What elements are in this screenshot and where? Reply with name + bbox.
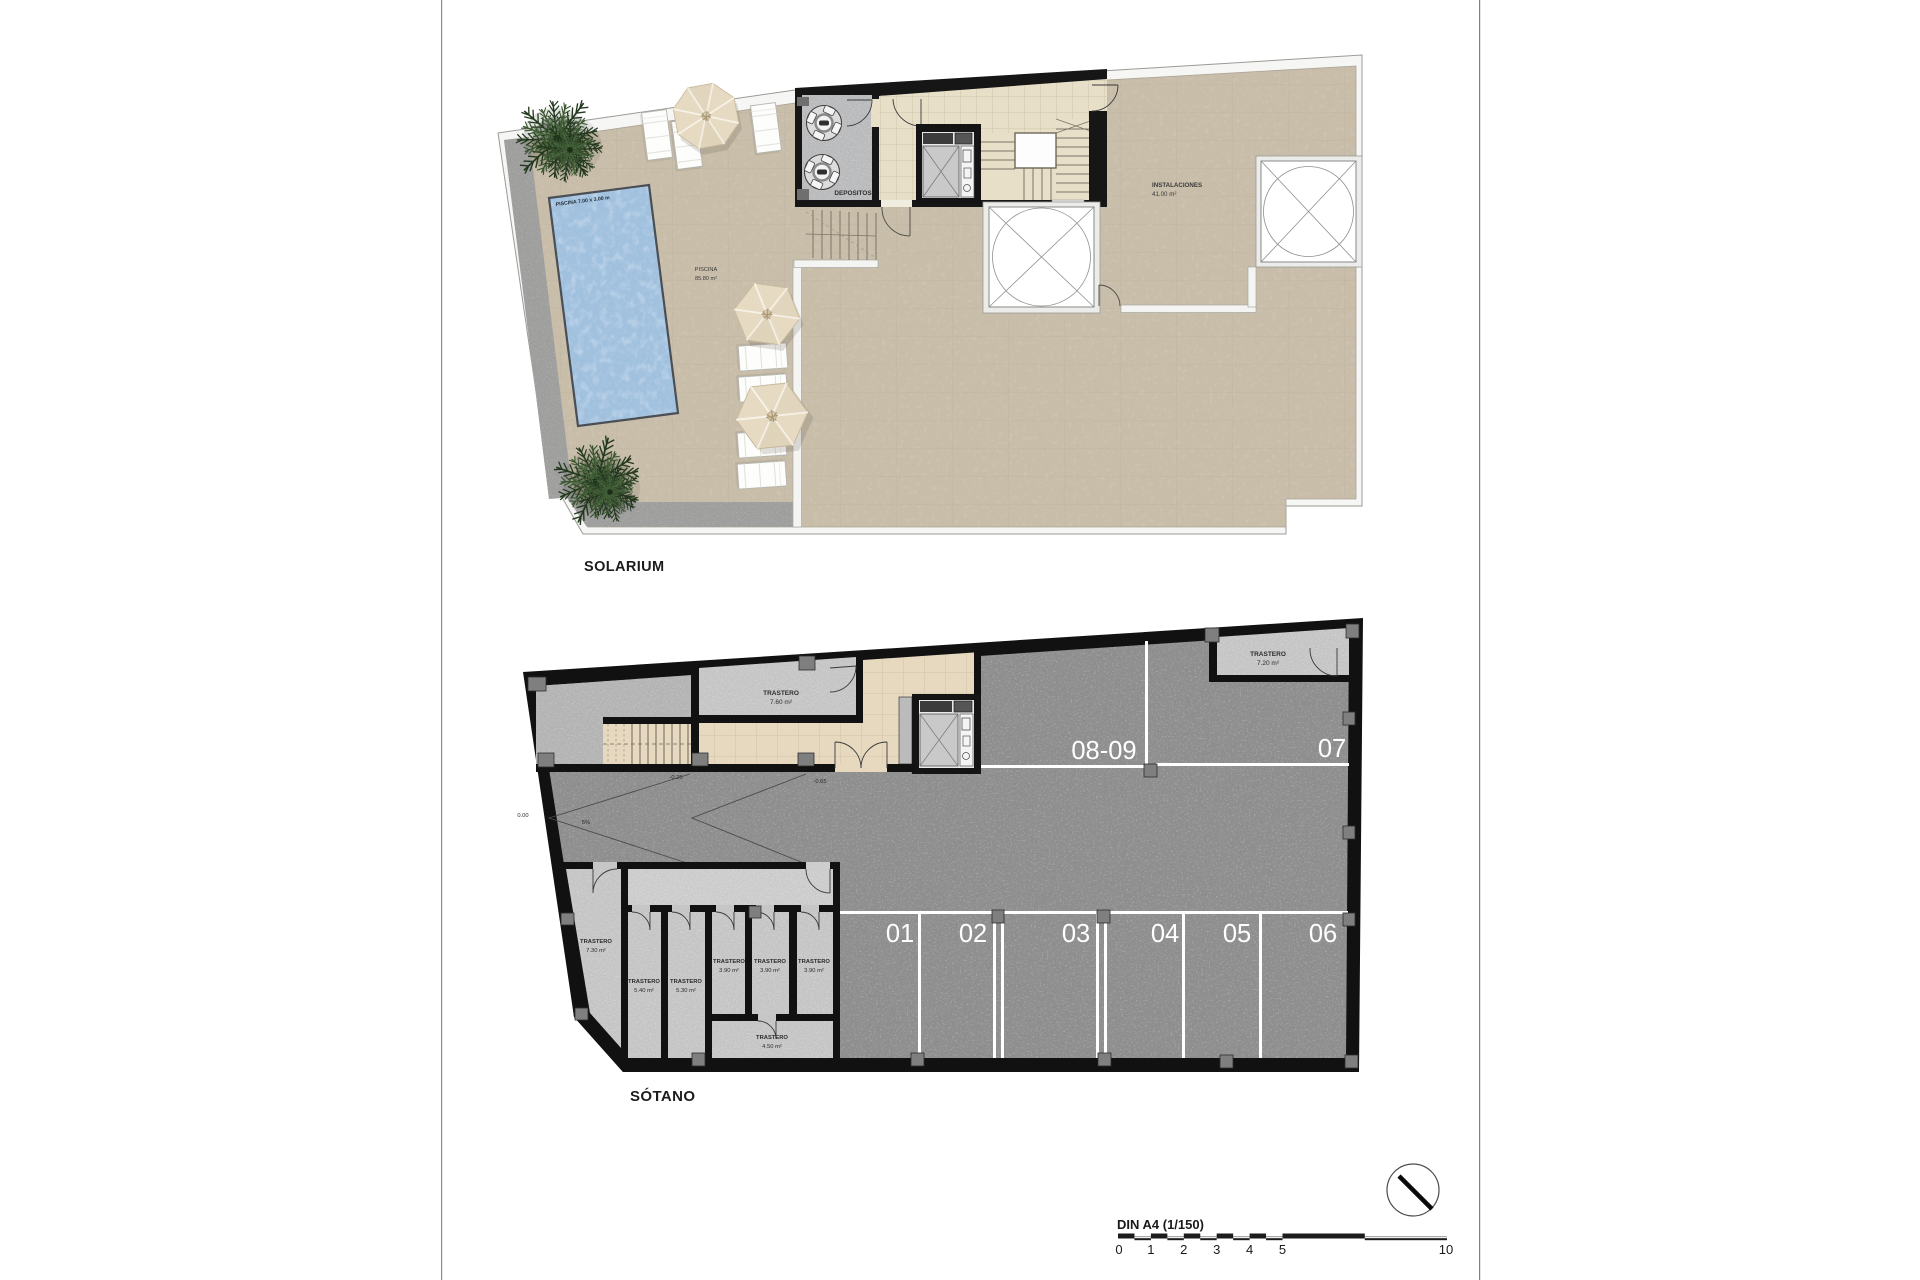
svg-text:06: 06 (1309, 920, 1337, 948)
svg-text:41.00 m²: 41.00 m² (1152, 191, 1176, 198)
svg-text:2: 2 (1180, 1242, 1187, 1257)
svg-text:5.30 m²: 5.30 m² (676, 988, 696, 994)
svg-text:85.80 m²: 85.80 m² (695, 276, 717, 282)
svg-text:SOLARIUM: SOLARIUM (584, 559, 665, 575)
svg-text:7.30 m²: 7.30 m² (586, 948, 606, 954)
svg-text:3.90 m²: 3.90 m² (804, 968, 824, 974)
svg-text:-0.65: -0.65 (813, 779, 826, 785)
svg-text:TRASTERO: TRASTERO (756, 1035, 788, 1041)
svg-text:5%: 5% (582, 820, 590, 826)
svg-text:TRASTERO: TRASTERO (713, 959, 745, 965)
svg-text:TRASTERO: TRASTERO (628, 979, 660, 985)
svg-text:DEPOSITOS: DEPOSITOS (834, 190, 872, 197)
svg-text:PISCINA: PISCINA (695, 267, 718, 273)
svg-text:07: 07 (1318, 735, 1346, 763)
svg-text:10: 10 (1439, 1242, 1453, 1257)
svg-text:TRASTERO: TRASTERO (754, 959, 786, 965)
svg-text:05: 05 (1223, 920, 1251, 948)
svg-text:3.90 m²: 3.90 m² (719, 968, 739, 974)
svg-text:TRASTERO: TRASTERO (798, 959, 830, 965)
svg-text:3.90 m²: 3.90 m² (760, 968, 780, 974)
svg-text:03: 03 (1062, 920, 1090, 948)
svg-text:5.40 m²: 5.40 m² (634, 988, 654, 994)
svg-text:DIN A4 (1/150): DIN A4 (1/150) (1117, 1217, 1204, 1232)
svg-text:4: 4 (1246, 1242, 1253, 1257)
svg-text:4.50 m²: 4.50 m² (762, 1044, 782, 1050)
svg-text:-0.25: -0.25 (669, 775, 682, 781)
svg-text:TRASTERO: TRASTERO (1250, 651, 1286, 658)
svg-text:3: 3 (1213, 1242, 1220, 1257)
svg-text:5: 5 (1279, 1242, 1286, 1257)
svg-text:08-09: 08-09 (1071, 737, 1136, 765)
svg-text:TRASTERO: TRASTERO (763, 690, 799, 697)
svg-text:7.60 m²: 7.60 m² (770, 699, 793, 706)
svg-text:0: 0 (1115, 1242, 1122, 1257)
svg-text:04: 04 (1151, 920, 1179, 948)
svg-text:INSTALACIONES: INSTALACIONES (1152, 182, 1202, 189)
svg-text:7.20 m²: 7.20 m² (1257, 660, 1280, 667)
svg-text:0.00: 0.00 (517, 813, 528, 819)
svg-text:1: 1 (1147, 1242, 1154, 1257)
svg-text:TRASTERO: TRASTERO (670, 979, 702, 985)
svg-text:TRASTERO: TRASTERO (580, 939, 612, 945)
svg-text:SÓTANO: SÓTANO (630, 1087, 695, 1105)
svg-text:02: 02 (959, 920, 987, 948)
svg-text:01: 01 (886, 920, 914, 948)
